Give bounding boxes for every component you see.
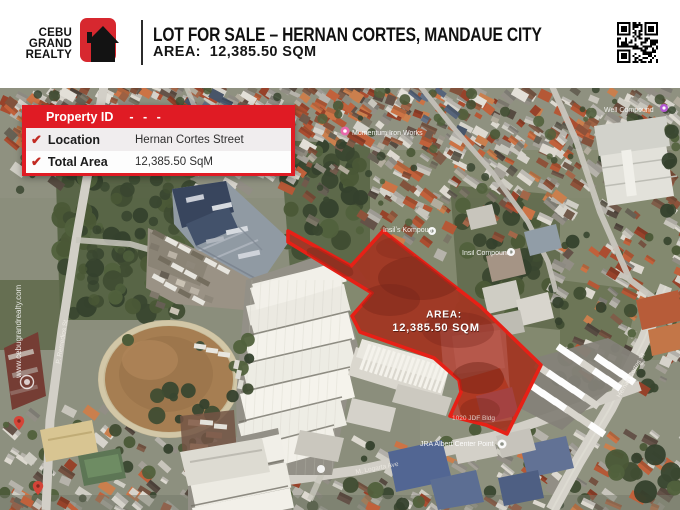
- svg-text:www.cebugrandrealty.com: www.cebugrandrealty.com: [14, 284, 23, 379]
- svg-text:12,385.50 SQM: 12,385.50 SQM: [392, 322, 479, 334]
- svg-text:Momentum Iron Works: Momentum Iron Works: [352, 130, 423, 137]
- svg-text:1020 JDF Bldg: 1020 JDF Bldg: [452, 415, 495, 422]
- svg-text:AREA:: AREA:: [426, 310, 462, 321]
- svg-text:JRA Albert Center Point: JRA Albert Center Point: [420, 441, 494, 448]
- svg-text:Insil Compound: Insil Compound: [462, 250, 511, 257]
- svg-text:Insilʼs Kompoun: Insilʼs Kompoun: [383, 226, 433, 234]
- svg-text:Well Compound: Well Compound: [604, 107, 654, 114]
